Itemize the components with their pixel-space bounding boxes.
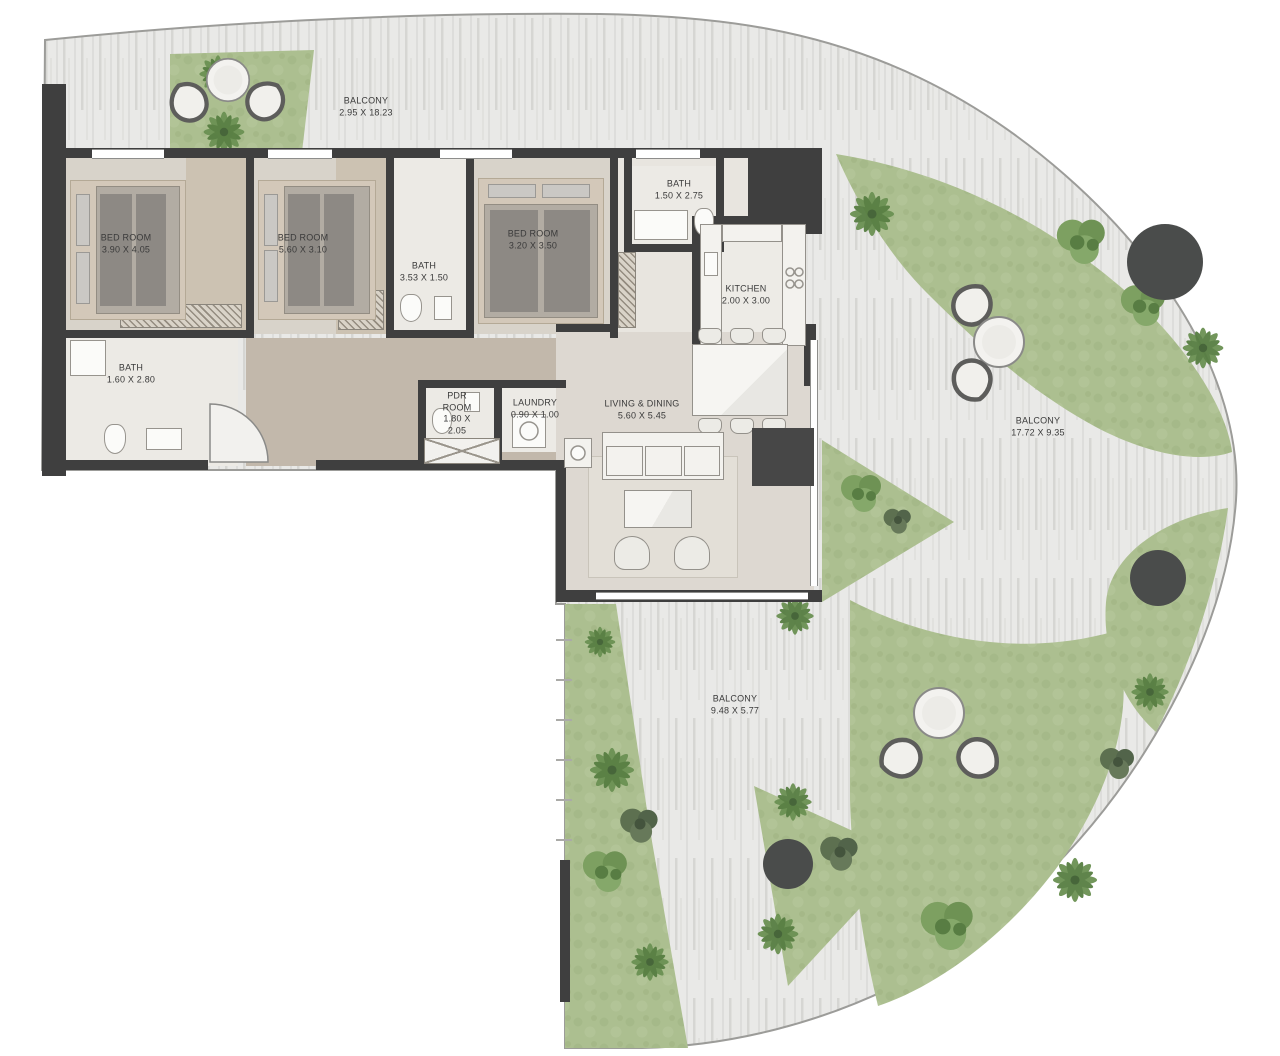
room-label-bedroom-1: BED ROOM 3.90 X 4.05 bbox=[101, 232, 152, 255]
floor-plan-canvas: BALCONY 2.95 X 18.23 BED ROOM 3.90 X 4.0… bbox=[0, 0, 1280, 1056]
room-label-balcony-right: BALCONY 17.72 X 9.35 bbox=[1011, 415, 1064, 438]
room-label-bath-3: BATH 1.50 X 2.75 bbox=[655, 178, 703, 201]
room-label-laundry: LAUNDRY 0.90 X 1.00 bbox=[511, 397, 559, 420]
room-label-bedroom-2: BED ROOM 5.60 X 3.10 bbox=[278, 232, 329, 255]
room-label-kitchen: KITCHEN 2.00 X 3.00 bbox=[722, 283, 770, 306]
room-label-bedroom-3: BED ROOM 3.20 X 3.50 bbox=[508, 228, 559, 251]
room-label-living-dining: LIVING & DINING 5.60 X 5.45 bbox=[604, 398, 679, 421]
room-label-balcony-top: BALCONY 2.95 X 18.23 bbox=[339, 95, 392, 118]
room-labels: BALCONY 2.95 X 18.23 BED ROOM 3.90 X 4.0… bbox=[0, 0, 1280, 1056]
room-label-pdr-room: PDR ROOM 1.80 X 2.05 bbox=[434, 391, 480, 438]
room-label-bath-1: BATH 1.60 X 2.80 bbox=[107, 362, 155, 385]
room-label-bath-2: BATH 3.53 X 1.50 bbox=[400, 260, 448, 283]
room-label-balcony-bottom: BALCONY 9.48 X 5.77 bbox=[711, 693, 759, 716]
